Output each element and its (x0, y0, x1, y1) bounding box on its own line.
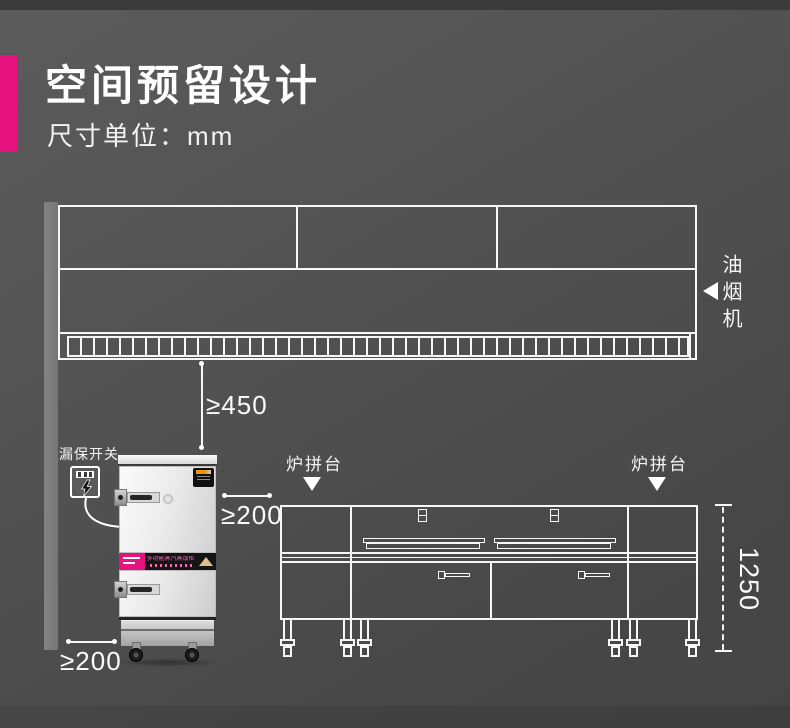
drawer-handle (578, 571, 585, 579)
brand-band-text: 多功能蒸汽蒸饭柜 (145, 556, 196, 563)
vent-icon (550, 509, 559, 522)
counter-label-right: 炉拼台 (631, 450, 688, 475)
wall-bar (44, 202, 58, 650)
title-accent-bar (0, 55, 17, 152)
door-hinge (114, 489, 127, 506)
dim-450-end-dot (199, 361, 204, 366)
dim-1250-tick (715, 504, 732, 506)
dim-200-mid-label: ≥200 (221, 500, 283, 531)
brand-band-dots (150, 564, 192, 567)
rice-steamer-cabinet: 多功能蒸汽蒸饭柜 (117, 453, 218, 665)
page-title: 空间预留设计 (45, 52, 321, 113)
leakage-switch-label: 漏保开关 (59, 444, 119, 464)
dim-200-mid-line (224, 495, 271, 497)
brand-triangle-icon (196, 557, 216, 566)
bottom-divider-strip (0, 706, 790, 728)
counter-arrow-icon (303, 477, 321, 491)
dim-200-wall-label: ≥200 (60, 646, 122, 677)
range-hood-outline (58, 205, 697, 360)
counter-label-left: 炉拼台 (286, 450, 343, 475)
counter-top-line (280, 552, 698, 554)
hood-divider-line (60, 332, 695, 334)
product-diagram-page: 空间预留设计 尺寸单位：mm 油烟机 ≥450 漏保开关 (0, 0, 790, 728)
switch-slots (76, 471, 94, 478)
upper-door-handle (127, 492, 160, 503)
hood-label: 油烟机 (716, 254, 745, 335)
steamer-top-cap (118, 455, 217, 466)
counter-leg (608, 619, 623, 657)
counter-leg (340, 619, 355, 657)
brand-band: 多功能蒸汽蒸饭柜 (119, 553, 216, 570)
counter-arrow-icon (648, 477, 666, 491)
dim-450-label: ≥450 (206, 390, 268, 421)
lightning-icon (80, 480, 93, 497)
dim-200-mid-dot (267, 493, 272, 498)
leakage-switch (70, 466, 100, 498)
brand-logo-block (119, 553, 145, 570)
door-badge (163, 494, 173, 504)
dim-1250-line (722, 507, 724, 650)
top-divider-strip (0, 0, 790, 10)
dim-450-line (201, 364, 203, 447)
griddle-tray (497, 543, 611, 549)
vent-icon (418, 509, 427, 522)
counter-lower-divider (490, 562, 492, 620)
griddle-tray (366, 543, 480, 549)
dim-200-wall-line (68, 641, 115, 643)
drawer-handle (445, 573, 470, 577)
counter-mid-line (280, 561, 698, 563)
dim-200-mid-dot (222, 493, 227, 498)
stove-counter-outline (280, 505, 698, 657)
door-hinge (114, 581, 127, 598)
counter-mid-line (280, 557, 698, 558)
hood-section-divider (296, 207, 298, 268)
lower-door-handle (127, 584, 160, 595)
dim-450-end-dot (199, 445, 204, 450)
unit-subtitle: 尺寸单位：mm (47, 116, 234, 153)
warning-sticker (193, 468, 214, 487)
drawer-handle (585, 573, 610, 577)
caster-wheel (184, 642, 201, 663)
hood-divider-line (60, 268, 695, 270)
counter-leg (685, 619, 700, 657)
hood-grille-end-line (689, 334, 691, 360)
counter-leg (280, 619, 295, 657)
hood-section-divider (496, 207, 498, 268)
dim-1250-label: 1250 (733, 547, 764, 611)
dim-200-wall-dot (66, 639, 71, 644)
caster-wheel (128, 642, 145, 663)
counter-leg (626, 619, 641, 657)
drawer-handle (438, 571, 445, 579)
dim-1250-tick (715, 650, 732, 652)
dim-200-wall-dot (112, 639, 117, 644)
hood-grille (67, 336, 689, 357)
counter-leg (357, 619, 372, 657)
